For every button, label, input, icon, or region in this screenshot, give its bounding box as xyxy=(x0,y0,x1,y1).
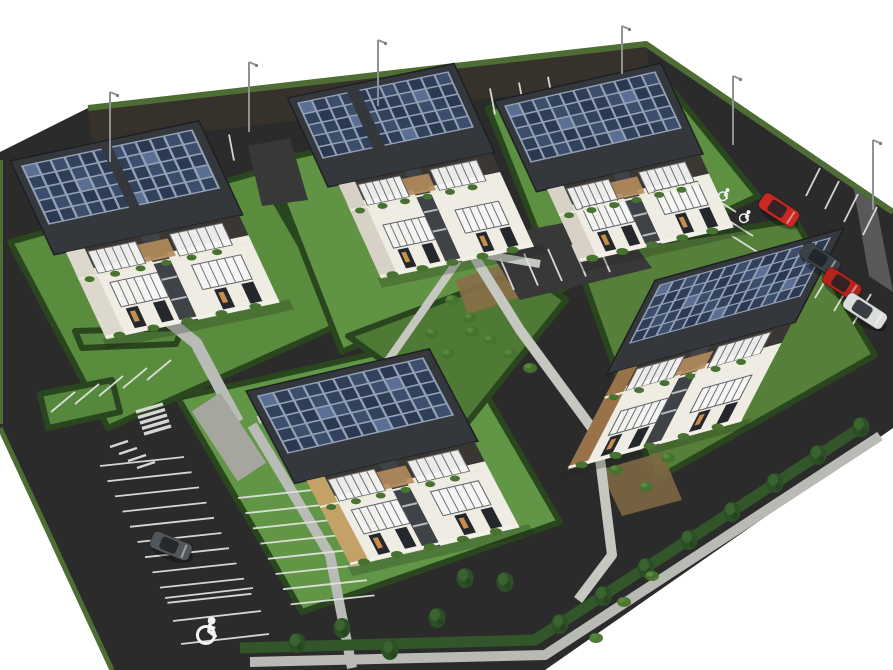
balcony-bush xyxy=(609,202,619,208)
garden-bush xyxy=(249,303,261,310)
balcony-bush xyxy=(677,187,687,193)
cypress-tree xyxy=(289,633,306,653)
shrub-highlight xyxy=(647,572,654,577)
cypress-tree xyxy=(457,568,474,588)
shrub-highlight xyxy=(427,329,434,334)
balcony-bush xyxy=(376,493,386,499)
garden-bush xyxy=(490,528,502,535)
garden-bush xyxy=(586,255,598,262)
tree-shade xyxy=(732,513,738,520)
balcony-bush xyxy=(136,265,146,271)
balcony-bush xyxy=(564,212,574,218)
pole-arm xyxy=(378,40,385,43)
pole-arm xyxy=(249,62,256,65)
tree-shade xyxy=(560,625,566,632)
garden-bush xyxy=(646,241,658,248)
tree-shade xyxy=(437,619,443,626)
garden-bush xyxy=(576,461,588,468)
tree-shade xyxy=(689,541,695,548)
site-plan-3d-render xyxy=(0,0,893,670)
cypress-tree xyxy=(429,608,446,628)
garden-bush xyxy=(678,433,690,440)
shrub-highlight xyxy=(619,598,626,603)
lamp-head xyxy=(739,78,742,81)
balcony-bush xyxy=(423,194,433,200)
garden-bush xyxy=(477,253,489,260)
tree-shade xyxy=(861,428,867,435)
garden-bush xyxy=(676,234,688,241)
garden-bush xyxy=(616,248,628,255)
pole-arm xyxy=(873,140,880,143)
cypress-tree xyxy=(853,417,870,437)
balcony-bush xyxy=(634,387,644,393)
garden-bush xyxy=(424,543,436,550)
garden-bush xyxy=(447,259,459,266)
cypress-tree xyxy=(497,572,514,592)
garden-bush xyxy=(610,452,622,459)
balcony-bush xyxy=(351,498,361,504)
balcony-bush xyxy=(326,504,336,510)
garden-bush xyxy=(417,265,429,272)
shrub-highlight xyxy=(465,314,472,319)
tree-shade xyxy=(603,597,609,604)
balcony-bush xyxy=(212,249,222,255)
balcony-bush xyxy=(110,271,120,277)
garden-bush xyxy=(712,424,724,431)
lamp-head xyxy=(255,64,258,67)
tree-shade xyxy=(505,583,511,590)
garden-bush xyxy=(391,551,403,558)
lamp-head xyxy=(879,142,882,145)
balcony-bush xyxy=(736,359,746,365)
cypress-tree xyxy=(681,530,698,550)
balcony-bush xyxy=(400,487,410,493)
shrub-highlight xyxy=(591,634,598,639)
balcony-bush xyxy=(711,366,721,372)
render-viewport xyxy=(0,0,893,670)
shrub-highlight xyxy=(467,328,474,333)
tree-shade xyxy=(818,456,824,463)
garden-bush xyxy=(706,228,718,235)
balcony-bush xyxy=(187,255,197,261)
cypress-tree xyxy=(382,640,399,660)
lamp-head xyxy=(384,42,387,45)
lamp-head xyxy=(628,28,631,31)
balcony-bush xyxy=(654,192,664,198)
garden-bush xyxy=(644,442,656,449)
shrub-highlight xyxy=(505,350,512,355)
balcony-bush xyxy=(450,475,460,481)
shrub-highlight xyxy=(611,466,618,471)
shrub-highlight xyxy=(525,364,532,369)
tree-shade xyxy=(390,651,396,658)
shrub-highlight xyxy=(641,483,648,488)
tree-shade xyxy=(775,484,781,491)
balcony-bush xyxy=(609,394,619,400)
garden-bush xyxy=(387,271,399,278)
balcony-bush xyxy=(587,207,597,213)
balcony-bush xyxy=(85,276,95,282)
cypress-tree xyxy=(334,618,351,638)
cypress-tree xyxy=(810,445,827,465)
pole-arm xyxy=(110,92,117,95)
tree-shade xyxy=(342,629,348,636)
pole-arm xyxy=(733,76,740,79)
balcony-bush xyxy=(400,198,410,204)
garden-bush xyxy=(507,247,519,254)
balcony-bush xyxy=(378,203,388,209)
balcony-bush xyxy=(468,184,478,190)
tree-shade xyxy=(297,644,303,651)
balcony-bush xyxy=(660,380,670,386)
balcony-bush xyxy=(355,208,365,214)
garden-bush xyxy=(181,317,193,324)
garden-bush xyxy=(113,332,125,339)
scene-root xyxy=(0,26,893,670)
garden-bush xyxy=(147,325,159,332)
cypress-tree xyxy=(552,614,569,634)
cypress-tree xyxy=(724,502,741,522)
shrub-highlight xyxy=(443,350,450,355)
balcony-bush xyxy=(632,197,642,203)
shrub-highlight xyxy=(663,454,670,459)
shrub-highlight xyxy=(447,296,454,301)
cypress-tree xyxy=(595,586,612,606)
garden-bush xyxy=(457,536,469,543)
garden-bush xyxy=(215,310,227,317)
balcony-bush xyxy=(445,189,455,195)
lamp-head xyxy=(116,94,119,97)
shrub-highlight xyxy=(485,336,492,341)
cypress-tree xyxy=(767,473,784,493)
balcony-bush xyxy=(685,373,695,379)
garden-bush xyxy=(358,559,370,566)
balcony-bush xyxy=(161,260,171,266)
balcony-bush xyxy=(425,481,435,487)
pole-arm xyxy=(622,26,629,29)
tree-shade xyxy=(465,579,471,586)
